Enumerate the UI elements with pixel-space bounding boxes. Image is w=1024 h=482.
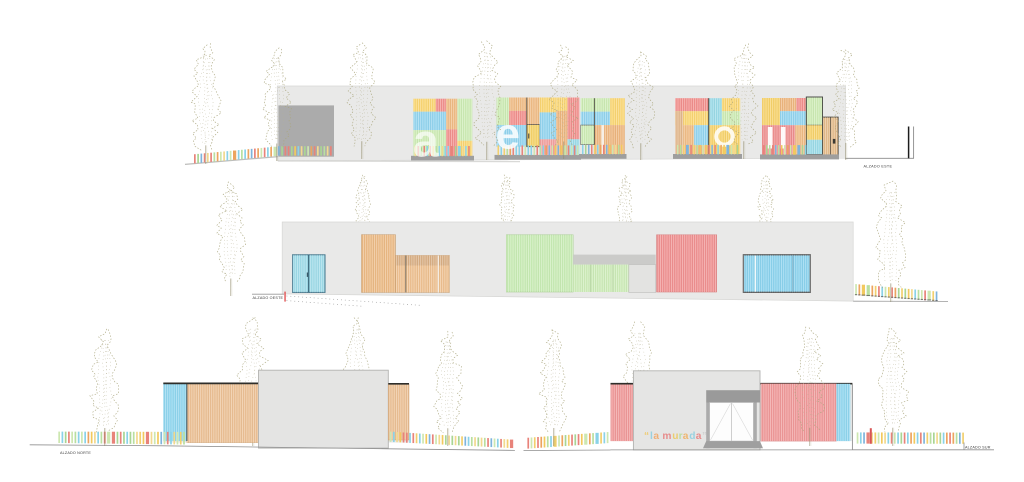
svg-text:“: “ bbox=[644, 431, 649, 442]
svg-text:e: e bbox=[496, 110, 520, 159]
svg-text:ALZADO OESTE: ALZADO OESTE bbox=[253, 296, 284, 300]
svg-text:ALZADO ESTE: ALZADO ESTE bbox=[864, 165, 893, 169]
svg-text:a: a bbox=[413, 114, 439, 166]
svg-text:ALZADO SUR: ALZADO SUR bbox=[965, 446, 991, 450]
svg-text:a: a bbox=[653, 431, 659, 442]
svg-text:u: u bbox=[672, 431, 678, 442]
svg-text:m: m bbox=[662, 431, 671, 442]
svg-text:ALZADO NORTE: ALZADO NORTE bbox=[60, 451, 91, 455]
svg-text:d: d bbox=[689, 431, 695, 442]
svg-text:a: a bbox=[696, 431, 702, 442]
svg-text:a: a bbox=[683, 431, 689, 442]
